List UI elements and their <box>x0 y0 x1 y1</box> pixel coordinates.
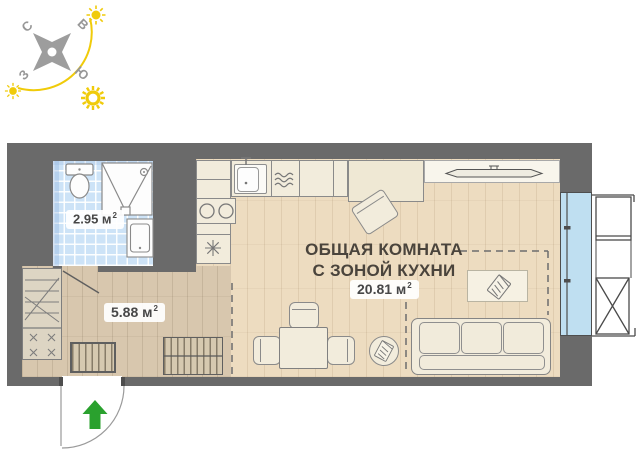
sofa-base <box>419 355 545 370</box>
hall-closet <box>163 337 223 375</box>
hallway-area-label: 5.88 м2 <box>104 303 165 322</box>
sink-basin <box>237 167 259 192</box>
compass-north-label: С <box>18 17 36 35</box>
compass-south-label: Ю <box>72 63 92 83</box>
cooktop-unit <box>196 198 236 224</box>
compass-west-label: З <box>16 67 32 83</box>
sofa-cushion <box>503 322 544 354</box>
compass-rose: С В З Ю <box>0 0 116 116</box>
area-sup: 2 <box>154 304 158 313</box>
balcony-railing <box>592 195 635 336</box>
area-sup: 2 <box>113 211 117 220</box>
entry-arrow-icon <box>83 400 108 429</box>
divider <box>197 179 230 180</box>
kitchen-sink-icon <box>234 164 267 194</box>
area-value: 5.88 м <box>111 304 153 320</box>
area-sup: 2 <box>407 281 411 290</box>
compass-hub <box>48 48 57 57</box>
floor-plan: 2.95 м2 5.88 м2 ОБЩАЯ КОМНАТА С ЗОНОЙ КУ… <box>0 0 639 456</box>
sofa <box>411 318 551 375</box>
bathroom-wall-segment <box>98 266 196 272</box>
sofa-cushion <box>461 322 502 354</box>
dining-table <box>279 327 328 369</box>
divider <box>197 234 230 235</box>
sofa-cushion <box>419 322 460 354</box>
dining-chair-top <box>289 302 319 329</box>
area-value: 20.81 м <box>357 281 406 297</box>
bathroom-area-label: 2.95 м2 <box>66 210 124 229</box>
sun-icon <box>87 6 106 25</box>
window <box>560 192 592 336</box>
wardrobe <box>22 268 62 360</box>
area-value: 2.95 м <box>73 211 112 226</box>
tv-shelf <box>424 160 560 183</box>
entry-door <box>59 377 125 448</box>
chair-back <box>292 304 316 310</box>
main-room-area-label: 20.81 м2 <box>350 280 419 299</box>
compass-east-label: В <box>75 16 92 33</box>
shoe-rack <box>70 342 116 373</box>
room-title-line2: С ЗОНОЙ КУХНИ <box>288 260 480 281</box>
dining-chair-left <box>253 336 281 365</box>
divider <box>333 161 334 196</box>
room-title-line1: ОБЩАЯ КОМНАТА <box>288 239 480 260</box>
dining-chair-right <box>327 336 355 365</box>
room-title: ОБЩАЯ КОМНАТА С ЗОНОЙ КУХНИ <box>288 239 480 281</box>
pouf <box>369 336 399 366</box>
chair-back <box>347 339 353 362</box>
divider <box>299 161 300 196</box>
sun-icon <box>5 83 21 99</box>
chair-back <box>255 339 261 362</box>
divider <box>271 161 272 196</box>
sun-icon <box>81 86 105 110</box>
entry-door-opening <box>62 376 122 386</box>
entry-door-arc <box>62 386 124 448</box>
